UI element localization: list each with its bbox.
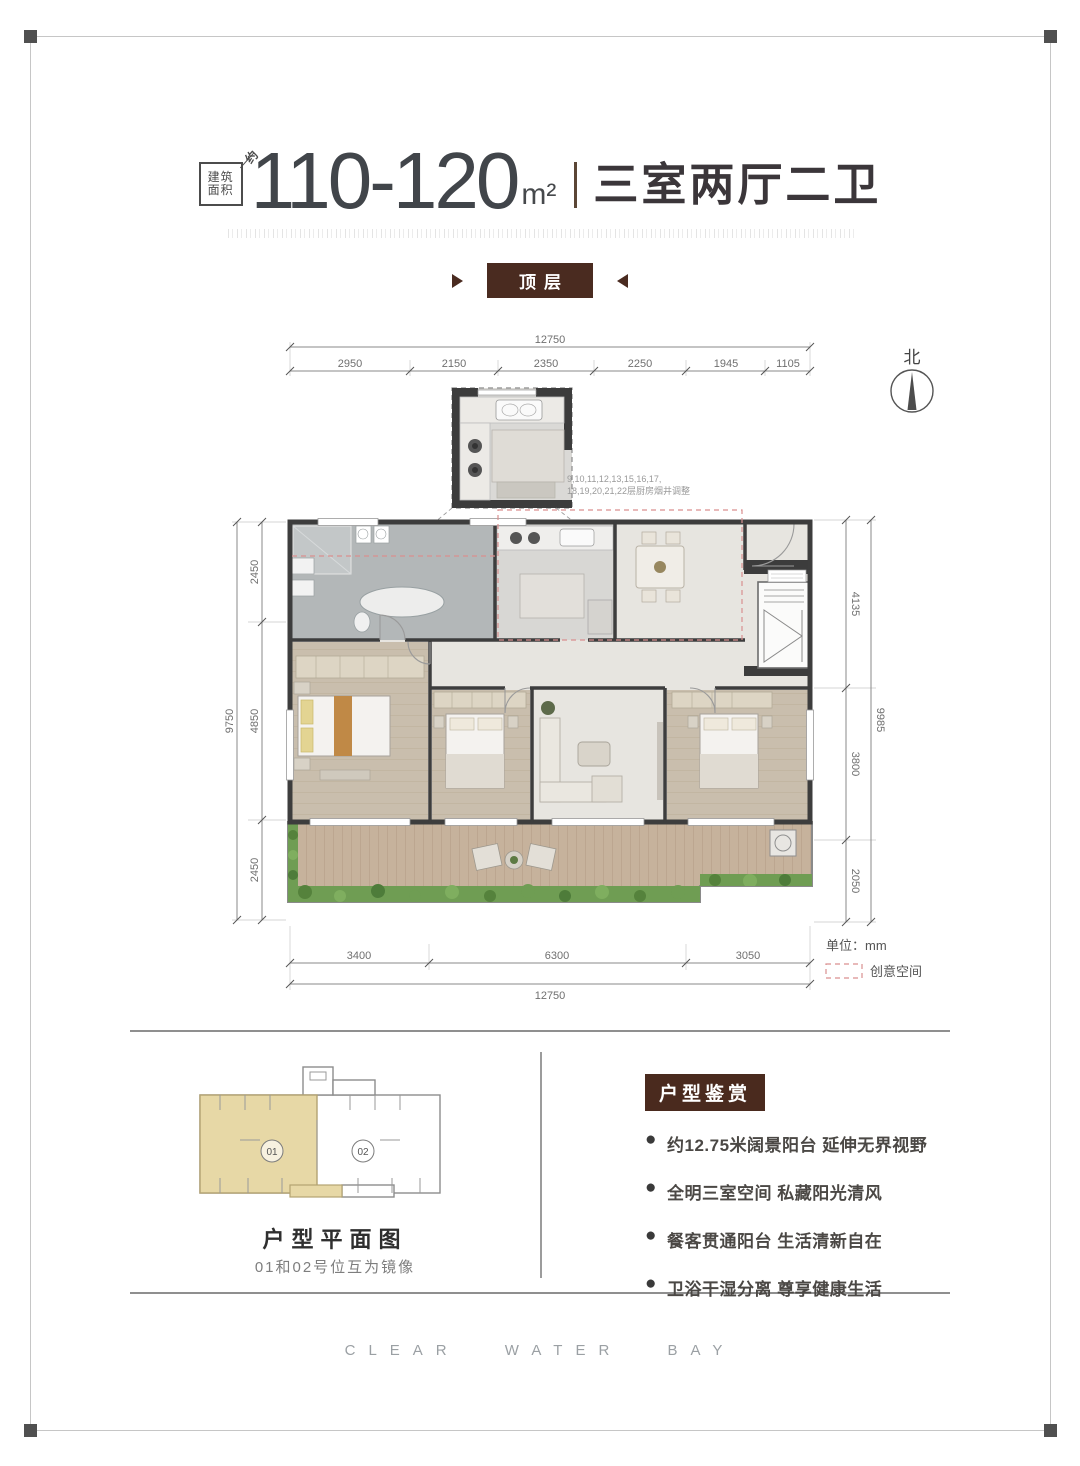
creative-space-swatch bbox=[826, 964, 862, 978]
dim-label: 1105 bbox=[776, 358, 800, 370]
corner-square bbox=[1044, 30, 1057, 43]
area-range: 110-120 bbox=[251, 148, 518, 214]
dim-label: 4135 bbox=[849, 592, 861, 616]
feature-item: ●约12.75米阔景阳台 延伸无界视野 bbox=[645, 1131, 945, 1156]
inset-note-line2: 18,19,20,21,22层厨房烟井调整 bbox=[567, 485, 690, 496]
texture-band bbox=[228, 229, 854, 238]
bottom-dimensions: 3400 6300 3050 12750 bbox=[286, 926, 814, 1002]
dim-label: 2150 bbox=[442, 358, 466, 370]
corner-square bbox=[24, 30, 37, 43]
features-title-badge: 户型鉴赏 bbox=[645, 1074, 765, 1111]
north-label: 北 bbox=[904, 348, 921, 367]
kitchen-inset: 9,10,11,12,13,15,16,17, 18,19,20,21,22层厨… bbox=[428, 388, 690, 528]
dim-label: 2450 bbox=[249, 858, 261, 882]
feature-text: 约12.75米阔景阳台 延伸无界视野 bbox=[667, 1131, 927, 1156]
dim-label: 4850 bbox=[249, 709, 261, 733]
bullet-icon: ● bbox=[645, 1130, 657, 1149]
keyplan-subtitle: 01和02号位互为镜像 bbox=[130, 1256, 540, 1277]
area-unit: m² bbox=[521, 178, 556, 212]
feature-item: ●全明三室空间 私藏阳光清风 bbox=[645, 1179, 945, 1204]
bullet-icon: ● bbox=[645, 1178, 657, 1197]
layout-title: 三室两厅二卫 bbox=[593, 148, 881, 213]
arrow-left-icon bbox=[617, 274, 628, 288]
key-plan: 01 02 bbox=[190, 1060, 480, 1210]
arrow-right-icon bbox=[452, 274, 463, 288]
dim-label: 3400 bbox=[347, 950, 371, 962]
corner-square bbox=[1044, 1424, 1057, 1437]
corner-square bbox=[24, 1424, 37, 1437]
floor-plan: 12750 2950 2150 2350 2250 1945 1105 北 bbox=[0, 330, 1080, 1030]
area-box-line2: 面积 bbox=[208, 184, 234, 197]
features-section: 户型鉴赏 ●约12.75米阔景阳台 延伸无界视野 ●全明三室空间 私藏阳光清风 … bbox=[645, 1074, 945, 1323]
features-list: ●约12.75米阔景阳台 延伸无界视野 ●全明三室空间 私藏阳光清风 ●餐客贯通… bbox=[645, 1131, 945, 1300]
dim-bottom-total: 12750 bbox=[535, 990, 566, 1002]
creative-space-label: 创意空间 bbox=[870, 964, 922, 979]
dim-top-total: 12750 bbox=[535, 334, 566, 346]
feature-text: 卫浴干湿分离 尊享健康生活 bbox=[667, 1275, 882, 1300]
header: 建筑 面积 约 110-120 m² 三室两厅二卫 bbox=[0, 148, 1080, 214]
unit02-label: 02 bbox=[357, 1147, 369, 1158]
building-area-box: 建筑 面积 约 bbox=[199, 162, 243, 206]
dim-label: 2450 bbox=[249, 560, 261, 584]
north-indicator: 北 bbox=[891, 348, 933, 412]
left-dimensions: 9750 2450 4850 2450 bbox=[224, 518, 286, 924]
dim-label: 2350 bbox=[534, 358, 558, 370]
flyer-page: 建筑 面积 约 110-120 m² 三室两厅二卫 顶层 bbox=[0, 0, 1080, 1466]
main-plan bbox=[287, 510, 814, 902]
unit01-label: 01 bbox=[266, 1147, 278, 1158]
divider-top bbox=[130, 1030, 950, 1032]
feature-text: 餐客贯通阳台 生活清新自在 bbox=[667, 1227, 882, 1252]
compass-needle bbox=[908, 372, 917, 410]
bullet-icon: ● bbox=[645, 1274, 657, 1293]
dim-label: 2950 bbox=[338, 358, 362, 370]
inset-note-line1: 9,10,11,12,13,15,16,17, bbox=[567, 474, 661, 484]
feature-text: 全明三室空间 私藏阳光清风 bbox=[667, 1179, 882, 1204]
divider-vertical bbox=[540, 1052, 542, 1278]
floor-badge: 顶层 bbox=[487, 263, 593, 298]
dim-label: 6300 bbox=[545, 950, 569, 962]
unit01-marker: 01 bbox=[261, 1140, 283, 1162]
top-dimensions: 12750 2950 2150 2350 2250 1945 1105 bbox=[286, 334, 814, 376]
floor-badge-row: 顶层 bbox=[0, 263, 1080, 298]
title-separator bbox=[574, 162, 577, 208]
ac-unit bbox=[770, 830, 796, 856]
feature-item: ●卫浴干湿分离 尊享健康生活 bbox=[645, 1275, 945, 1300]
feature-item: ●餐客贯通阳台 生活清新自在 bbox=[645, 1227, 945, 1252]
keyplan-title: 户型平面图 bbox=[130, 1222, 540, 1254]
dim-label: 2250 bbox=[628, 358, 652, 370]
dim-label: 3050 bbox=[736, 950, 760, 962]
unit-label: 单位：mm bbox=[826, 938, 887, 953]
unit02-marker: 02 bbox=[352, 1140, 374, 1162]
right-dimensions: 4135 3800 2050 9985 bbox=[814, 516, 886, 926]
brand-footer: CLEAR WATER BAY bbox=[0, 1342, 1080, 1359]
bullet-icon: ● bbox=[645, 1226, 657, 1245]
dim-label: 1945 bbox=[714, 358, 738, 370]
dim-label: 2050 bbox=[849, 869, 861, 893]
dim-right-total: 9985 bbox=[874, 708, 886, 732]
plan-legend: 单位：mm 创意空间 bbox=[826, 938, 922, 979]
dim-left-total: 9750 bbox=[224, 709, 236, 733]
balcony bbox=[288, 822, 812, 902]
dim-label: 3800 bbox=[849, 752, 861, 776]
